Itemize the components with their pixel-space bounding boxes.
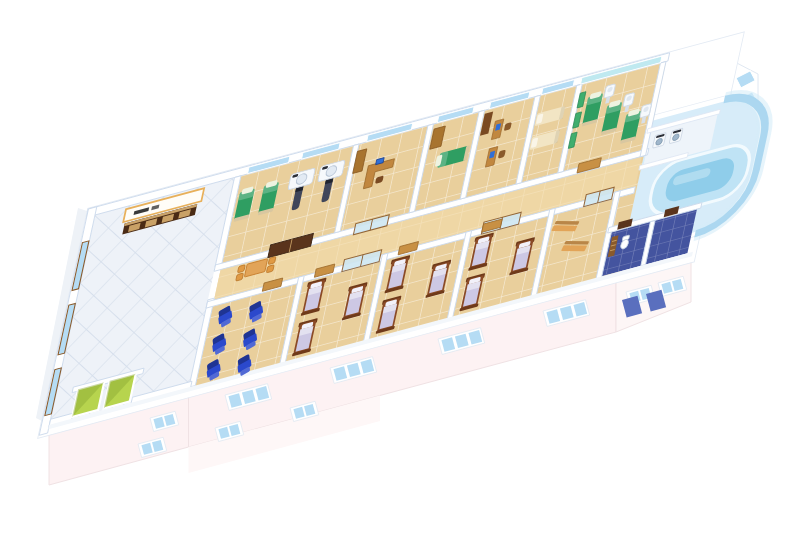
floorplan-stage bbox=[0, 0, 800, 550]
wood-bench bbox=[561, 241, 589, 251]
floorplan-render bbox=[0, 0, 800, 550]
wood-bench bbox=[551, 221, 579, 231]
